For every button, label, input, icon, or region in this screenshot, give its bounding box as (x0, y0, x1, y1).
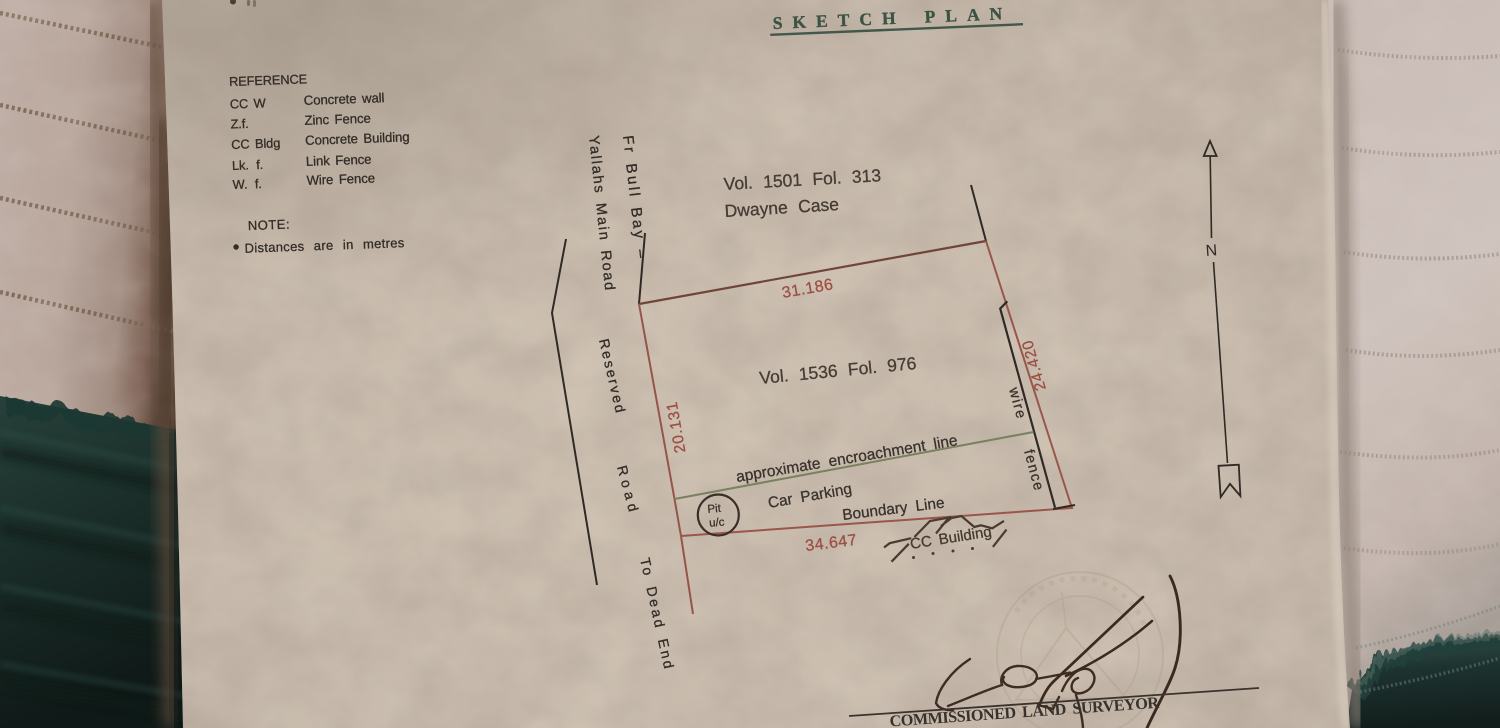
svg-text:PLAN: PLAN (924, 3, 1012, 27)
svg-text:W. f.: W. f. (232, 176, 262, 192)
svg-text:NOTE:: NOTE: (248, 217, 291, 233)
svg-text:Lk. f.: Lk. f. (232, 157, 264, 173)
svg-text:N: N (1205, 242, 1218, 260)
svg-text:Zinc Fence: Zinc Fence (304, 111, 371, 128)
svg-text:u/c: u/c (709, 516, 726, 529)
svg-text:Pit: Pit (707, 503, 722, 516)
svg-text:CC W: CC W (230, 95, 267, 111)
svg-text:Z.f.: Z.f. (230, 116, 249, 132)
svg-text:Concrete wall: Concrete wall (303, 90, 384, 108)
svg-text:Wire Fence: Wire Fence (306, 171, 375, 188)
svg-text:CC Bldg: CC Bldg (231, 135, 280, 152)
svg-text:REFERENCE: REFERENCE (229, 71, 308, 89)
svg-text:Link Fence: Link Fence (306, 152, 372, 169)
